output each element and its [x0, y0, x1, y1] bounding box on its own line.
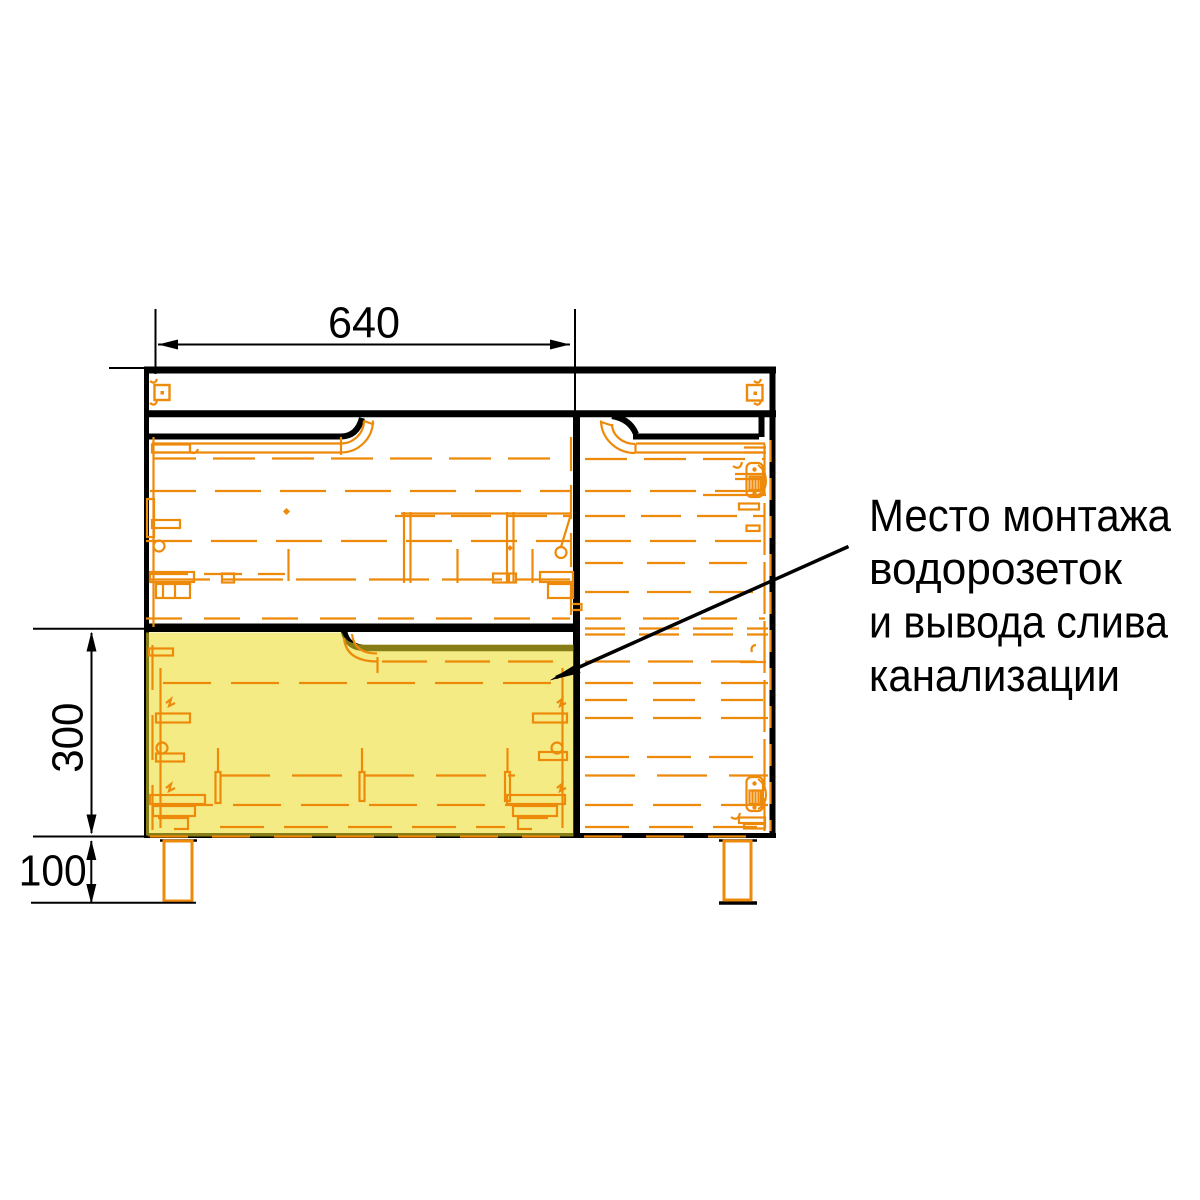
svg-text:300: 300 [44, 703, 93, 773]
svg-text:водорозеток: водорозеток [869, 543, 1122, 594]
svg-text:канализации: канализации [869, 650, 1120, 701]
svg-text:Место монтажа: Место монтажа [869, 490, 1172, 541]
svg-text:и вывода слива: и вывода слива [869, 597, 1169, 648]
svg-text:100: 100 [19, 846, 87, 895]
svg-text:640: 640 [328, 298, 400, 347]
